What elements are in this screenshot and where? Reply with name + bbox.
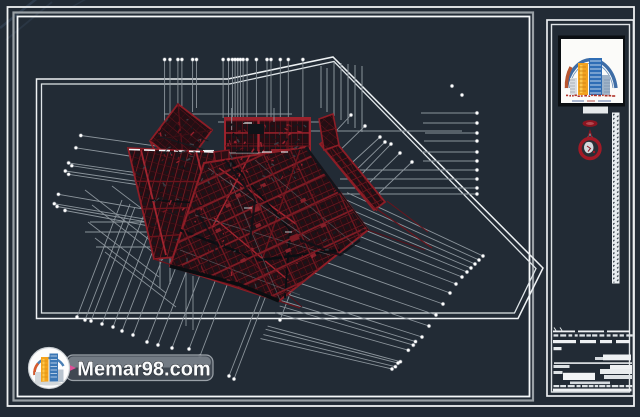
svg-text:Memar98.com: Memar98.com (77, 359, 210, 381)
